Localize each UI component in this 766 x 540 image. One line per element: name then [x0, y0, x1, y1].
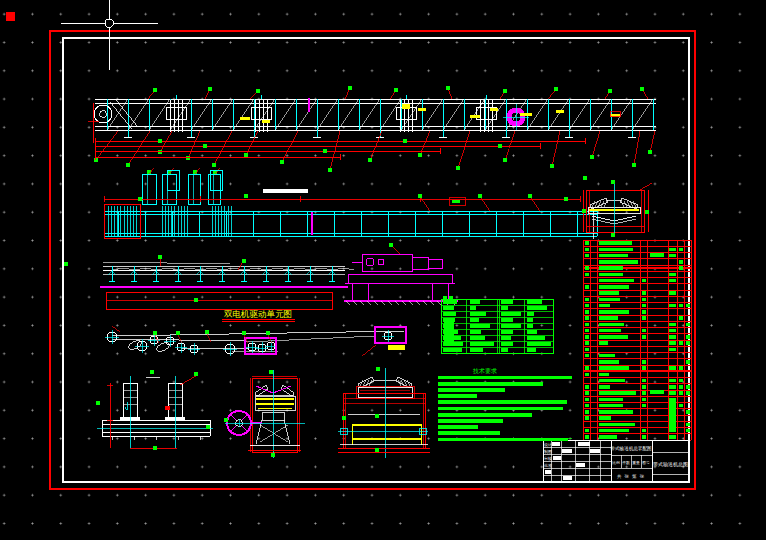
technical-notes: 技术要求 — [438, 368, 572, 442]
support-legs-detail — [96, 372, 213, 450]
selection-grip — [6, 12, 15, 21]
trough-section-detail — [338, 367, 430, 458]
conveyor-elevation-view — [88, 86, 656, 172]
conveyor-plan-view — [64, 168, 597, 266]
crosshair-cursor — [61, 0, 158, 70]
autocad-drawing-canvas[interactable]: 设计制图审核批准带式输送机总装配图比例件数重量图号共 张 第 张带式输送机总图双… — [0, 0, 766, 540]
belt-path-diagram — [105, 326, 406, 377]
title-block-sheet-info: 共 张 第 张 — [617, 474, 645, 479]
title-block-main-title: 带式输送机总装配图 — [610, 446, 651, 452]
title-block-left-label: 设计 — [544, 442, 552, 447]
title-block: 设计制图审核批准带式输送机总装配图比例件数重量图号共 张 第 张带式输送机总图 — [543, 440, 689, 482]
bom-table — [583, 240, 691, 440]
takeup-section-detail — [224, 370, 305, 458]
title-block-field-label: 图号 — [642, 461, 650, 465]
idler-section-detail — [582, 180, 652, 237]
technical-notes-heading: 技术要求 — [472, 368, 497, 375]
drive-unit-elevation-view: 双电机驱动单元图 — [100, 243, 458, 322]
title-block-left-label: 审核 — [544, 456, 552, 461]
title-block-field-label: 件数 — [622, 460, 630, 465]
cad-drawing: 设计制图审核批准带式输送机总装配图比例件数重量图号共 张 第 张带式输送机总图双… — [0, 0, 766, 540]
view3-caption: 双电机驱动单元图 — [224, 309, 292, 319]
parameter-table — [441, 299, 553, 353]
title-block-left-label: 批准 — [544, 463, 552, 468]
title-block-drawing-name: 带式输送机总图 — [653, 461, 688, 468]
title-block-field-label: 重量 — [632, 460, 640, 465]
title-block-field-label: 比例 — [612, 460, 620, 465]
